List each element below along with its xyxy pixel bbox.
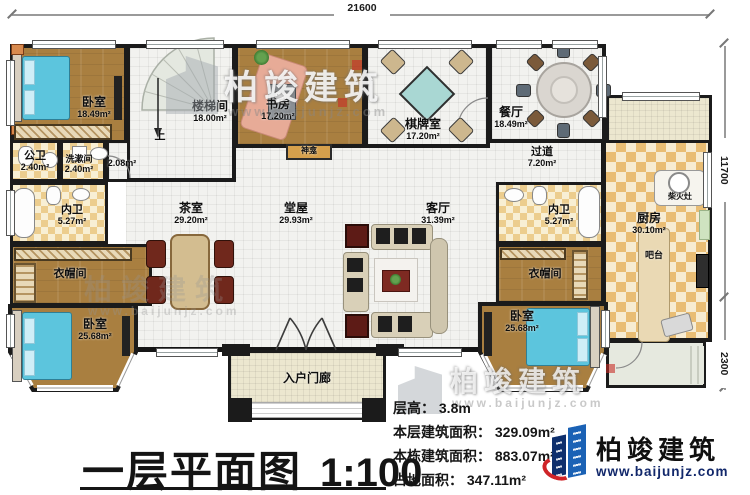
label-bar-counter: 吧台 xyxy=(638,250,670,260)
toilet xyxy=(532,186,547,205)
label-inner-wc-left: 内卫 5.27m² xyxy=(44,204,100,226)
room-name: 过道 xyxy=(514,146,570,158)
watermark-red-seal xyxy=(338,98,347,107)
room-area: 25.68m² xyxy=(60,331,130,341)
chair xyxy=(557,123,570,138)
dining-table-inner xyxy=(550,76,578,104)
room-area: 7.20m² xyxy=(514,158,570,168)
stove-ring xyxy=(668,172,690,194)
room-name: 餐厅 xyxy=(476,106,546,119)
label-living-room: 客厅 31.39m² xyxy=(407,202,469,226)
label-main-hall: 堂屋 29.93m² xyxy=(266,202,326,226)
sink xyxy=(504,188,524,202)
window xyxy=(6,190,15,236)
room-name: 内卫 xyxy=(531,204,587,216)
sink xyxy=(72,188,90,201)
watermark-website: www.baijunjz.com xyxy=(228,104,388,119)
dimension-right-upper-label: 11700 xyxy=(714,138,730,202)
title-underline xyxy=(80,487,386,490)
bathtub xyxy=(13,188,35,238)
wardrobe-strip xyxy=(500,248,566,260)
dimension-top-label: 21600 xyxy=(334,2,390,17)
chair xyxy=(516,84,531,97)
room-area: 17.20m² xyxy=(385,131,461,141)
wall-pier xyxy=(222,344,250,356)
pillow xyxy=(24,350,35,376)
label-shrine: 神龛 xyxy=(286,147,332,156)
window xyxy=(6,60,15,126)
label-dining: 餐厅 18.49m² xyxy=(476,106,546,130)
room-name: 客厅 xyxy=(407,202,469,215)
room-name: 衣帽间 xyxy=(515,268,575,280)
sofa-cushion xyxy=(412,228,426,244)
bed-headboard xyxy=(590,306,600,368)
logo-website: www.baijunjz.com xyxy=(596,464,729,479)
room-area: 29.20m² xyxy=(162,215,220,225)
label-kitchen: 厨房 30.10m² xyxy=(618,212,680,236)
window xyxy=(146,40,224,49)
room-name: 洗漱间 xyxy=(54,154,104,164)
room-name: 厨房 xyxy=(618,212,680,225)
room-name: 内卫 xyxy=(44,204,100,216)
sofa-cushion xyxy=(398,316,412,332)
label-corridor: 过道 7.20m² xyxy=(514,146,570,168)
pillow xyxy=(24,90,35,115)
room-area: 18.49m² xyxy=(49,109,139,119)
room-name: 卧室 xyxy=(60,318,130,331)
watermark-website: www.baijunjz.com xyxy=(88,304,240,318)
window xyxy=(622,92,700,101)
sofa-cushion xyxy=(347,258,363,272)
nightstand xyxy=(11,44,24,55)
side-cabinet xyxy=(345,224,369,248)
sofa-cushion xyxy=(347,278,363,292)
window xyxy=(6,314,15,348)
floor-plan-canvas: 21600 11700 2300 卧室 18.49m² 楼梯间 18.00m² … xyxy=(0,0,750,495)
porch-steps xyxy=(250,402,364,418)
label-tea-room: 茶室 29.20m² xyxy=(162,202,220,226)
pillow xyxy=(577,312,588,336)
dimension-right-lower-label: 2300 xyxy=(714,340,730,388)
room-name: 卧室 xyxy=(488,310,556,323)
sofa-cushion xyxy=(378,316,392,332)
chair xyxy=(146,240,166,268)
sofa-cushion xyxy=(394,228,408,244)
logo-building-icon xyxy=(544,422,592,482)
window xyxy=(552,40,598,49)
pillow xyxy=(24,318,35,344)
watermark-company: 柏竣建筑 xyxy=(84,268,232,308)
label-chess-room: 棋牌室 17.20m² xyxy=(385,118,461,142)
wardrobe-strip xyxy=(14,248,132,261)
room-name: 堂屋 xyxy=(266,202,326,215)
room-area: 5.27m² xyxy=(531,216,587,226)
window xyxy=(32,40,116,49)
pillow xyxy=(24,60,35,85)
room-name: 卧室 xyxy=(49,96,139,109)
plant xyxy=(390,274,401,285)
label-stairs-up: 上 xyxy=(150,130,170,142)
stairs-up-text: 上 xyxy=(150,130,170,142)
watermark-company: 柏竣建筑 xyxy=(450,360,586,400)
chaise xyxy=(430,238,448,334)
window xyxy=(156,348,218,357)
room-area: 31.39m² xyxy=(407,215,469,225)
label-bedroom-bottomright: 卧室 25.68m² xyxy=(488,310,556,334)
label-firewood-stove: 柴火灶 xyxy=(654,193,706,202)
label-washroom: 洗漱间 2.40m² xyxy=(54,154,104,174)
window xyxy=(496,40,542,49)
room-area: 5.27m² xyxy=(44,216,100,226)
room-name: 入户门廊 xyxy=(262,372,352,385)
window xyxy=(256,40,350,49)
fridge xyxy=(699,210,710,240)
porch-pillar xyxy=(228,398,252,422)
side-cabinet xyxy=(345,314,369,338)
dimension-line-right xyxy=(724,46,726,390)
stat-floor-height: 层高： 3.8m xyxy=(393,396,613,420)
wardrobe-strip xyxy=(14,124,112,140)
watermark-red-seal xyxy=(352,60,362,70)
porch-pillar xyxy=(362,398,386,422)
logo-company-name: 柏竣建筑 xyxy=(596,430,720,467)
company-logo: 柏竣建筑 www.baijunjz.com xyxy=(544,422,746,492)
label-niche: 2.08m² xyxy=(100,158,144,168)
pillow xyxy=(577,338,588,362)
cooktop xyxy=(696,254,709,288)
side-porch-steps xyxy=(690,346,704,384)
room-area: 29.93m² xyxy=(266,215,326,225)
entry-double-door xyxy=(276,318,336,350)
wardrobe-shelves xyxy=(14,263,36,303)
window xyxy=(598,56,607,118)
room-name: 神龛 xyxy=(286,147,332,156)
room-name: 棋牌室 xyxy=(385,118,461,131)
room-name: 吧台 xyxy=(638,250,670,260)
label-entry-porch: 入户门廊 xyxy=(262,372,352,385)
label-cloak-right: 衣帽间 xyxy=(515,268,575,280)
room-area: 25.68m² xyxy=(488,323,556,333)
label-inner-wc-right: 内卫 5.27m² xyxy=(531,204,587,226)
room-name: 茶室 xyxy=(162,202,220,215)
window xyxy=(601,310,610,348)
watermark-red-seal xyxy=(606,364,615,373)
label-bedroom-bottomleft: 卧室 25.68m² xyxy=(60,318,130,342)
room-area: 2.40m² xyxy=(54,164,104,174)
room-area: 30.10m² xyxy=(618,225,680,235)
chair xyxy=(214,240,234,268)
window xyxy=(398,348,462,357)
room-area: 2.08m² xyxy=(100,158,144,168)
label-bedroom-topleft: 卧室 18.49m² xyxy=(49,96,139,120)
window xyxy=(378,40,472,49)
toilet xyxy=(46,186,61,205)
room-area: 18.49m² xyxy=(476,119,546,129)
room-name: 柴火灶 xyxy=(654,193,706,202)
sofa-cushion xyxy=(376,228,390,244)
